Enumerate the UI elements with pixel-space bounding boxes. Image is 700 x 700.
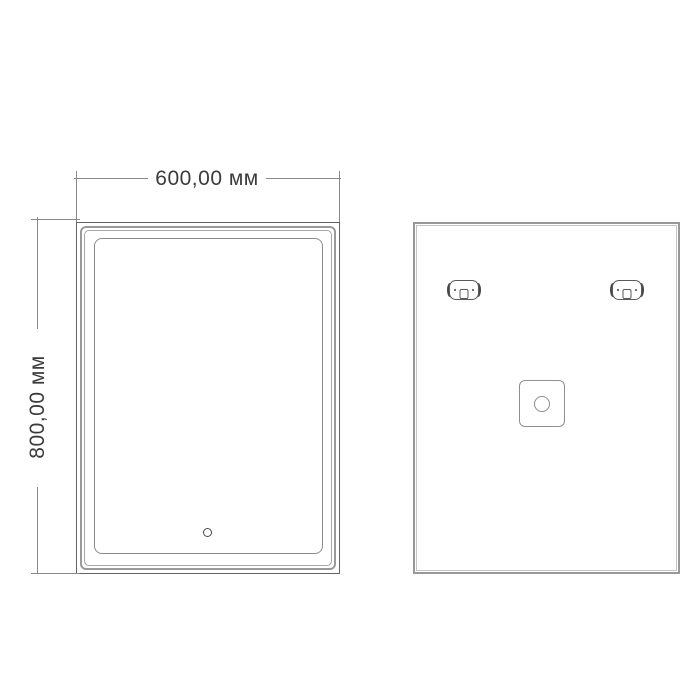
screw-hole-icon — [635, 289, 637, 291]
height-dimension-label: 800,00 мм — [26, 349, 50, 464]
height-extension-line-top — [31, 219, 80, 220]
junction-box — [519, 380, 565, 427]
screw-hole-icon — [454, 289, 456, 291]
width-dimension-line-right-segment — [266, 178, 341, 179]
keyhole-slot-icon — [460, 289, 469, 299]
front-view-mirror — [76, 222, 340, 574]
screw-hole-icon — [617, 289, 619, 291]
technical-drawing-canvas: 600,00 мм 800,00 мм — [0, 0, 700, 700]
width-dimension-line-left-segment — [74, 178, 148, 179]
mounting-bracket-left — [447, 280, 481, 300]
height-dimension-line-top-segment — [37, 217, 38, 329]
back-view-mirror — [413, 222, 680, 574]
cable-hole-icon — [534, 396, 550, 412]
keyhole-slot-icon — [623, 289, 632, 299]
mounting-bracket-right — [610, 280, 644, 300]
led-strip-line — [94, 238, 323, 554]
height-extension-line-bottom — [31, 573, 80, 574]
height-dimension-line-bottom-segment — [37, 487, 38, 574]
screw-hole-icon — [472, 289, 474, 291]
width-dimension-label: 600,00 мм — [149, 167, 264, 191]
touch-sensor-icon — [203, 528, 212, 537]
